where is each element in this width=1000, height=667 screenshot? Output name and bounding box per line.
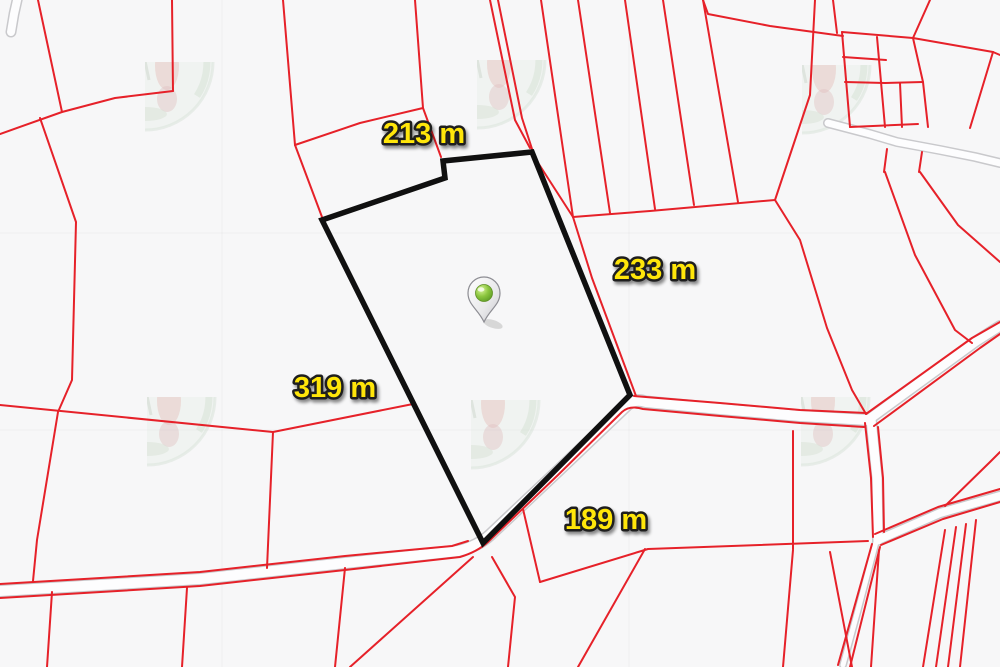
map-viewport[interactable]: 213 m 233 m 319 m 189 m <box>0 0 1000 667</box>
measurement-label-left: 319 m <box>294 372 376 404</box>
measurement-label-top: 213 m <box>383 118 465 150</box>
pin-highlight <box>478 287 485 291</box>
measurement-label-right: 233 m <box>614 254 696 286</box>
measurement-label-bottom: 189 m <box>565 504 647 536</box>
pin-ball <box>476 285 493 302</box>
map-canvas[interactable]: 213 m 233 m 319 m 189 m <box>0 0 1000 667</box>
